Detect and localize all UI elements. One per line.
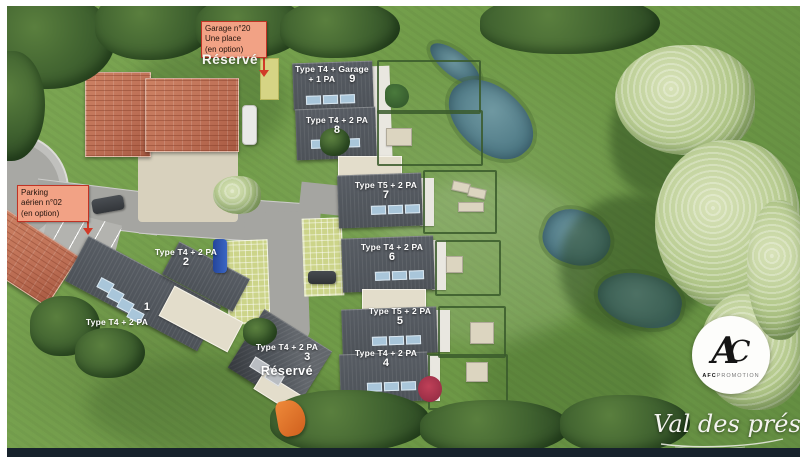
paver-parking-east bbox=[302, 217, 345, 296]
garage-note-line2: Une place bbox=[205, 34, 263, 44]
small-tree bbox=[213, 176, 261, 214]
top-margin bbox=[0, 0, 800, 6]
tree-cluster bbox=[280, 0, 400, 58]
unit-6-number: 6 bbox=[357, 252, 427, 264]
garden-hedge-6 bbox=[435, 240, 501, 296]
project-name: Val des prés bbox=[647, 410, 800, 438]
existing-house-wing-west bbox=[85, 72, 151, 157]
green-tent bbox=[385, 84, 409, 108]
unit-3-number: 3 bbox=[291, 352, 324, 364]
monogram-c: C bbox=[728, 334, 750, 368]
reserved-label-unit-3: Réservé bbox=[250, 364, 324, 379]
car-dark-parked bbox=[308, 271, 336, 284]
company-name-bold: AFC bbox=[702, 373, 716, 379]
dining-set bbox=[470, 322, 494, 344]
left-margin bbox=[0, 0, 7, 457]
unit-7-number: 7 bbox=[349, 190, 423, 202]
unit-8-label: Type T4 + 2 PA 8 bbox=[300, 115, 374, 137]
unit-2-label: Type T4 + 2 PA 2 bbox=[148, 247, 224, 269]
garage-arrow-head bbox=[259, 70, 269, 77]
red-flower-bush bbox=[418, 376, 442, 402]
company-name: AFCPROMOTION bbox=[702, 373, 759, 379]
unit-9-label: Type T4 + Garage + 1 PA 9 bbox=[290, 64, 374, 86]
solar-panels-6 bbox=[375, 270, 424, 281]
dining-set bbox=[466, 362, 488, 382]
parking-note-line1: Parking bbox=[21, 188, 85, 198]
existing-house-wing-east bbox=[145, 78, 239, 152]
garden-table bbox=[446, 256, 463, 273]
solar-panels-9 bbox=[306, 94, 355, 105]
unit-9-type2: + 1 PA bbox=[308, 74, 335, 84]
car-white bbox=[242, 105, 257, 145]
unit-5-number: 5 bbox=[364, 316, 436, 328]
unit-4-number: 4 bbox=[350, 358, 422, 370]
parking-note-line3: (en option) bbox=[21, 209, 85, 219]
parking-arrow-head bbox=[83, 228, 93, 235]
reserved-label-top: Réservé bbox=[202, 52, 258, 67]
unit-9-number: 9 bbox=[349, 74, 355, 86]
aerial-render: Garage n°20 Une place (en option) Parkin… bbox=[7, 6, 800, 457]
unit-3-label: Type T4 + 2 PA 3 Réservé bbox=[250, 342, 324, 379]
unit-9-type: Type T4 + Garage bbox=[290, 64, 374, 74]
bottom-border-bar bbox=[7, 448, 800, 457]
solar-panels-5 bbox=[372, 335, 421, 346]
tree-cluster bbox=[480, 0, 660, 54]
garden-bench bbox=[458, 202, 484, 212]
flowering-tree bbox=[615, 45, 755, 155]
afc-promotion-logo: AC AFCPROMOTION bbox=[692, 316, 770, 394]
unit-1-number-label: 1 bbox=[140, 302, 154, 314]
unit-8-number: 8 bbox=[300, 125, 374, 137]
garden-table bbox=[386, 128, 412, 146]
afc-monogram: AC bbox=[711, 331, 750, 371]
bush-row bbox=[420, 400, 570, 455]
parking-note-line2: aérien n°02 bbox=[21, 198, 85, 208]
unit-2-number: 2 bbox=[148, 257, 224, 269]
solar-panels-7 bbox=[371, 204, 420, 215]
garage-note-line1: Garage n°20 bbox=[205, 24, 263, 34]
company-name-light: PROMOTION bbox=[717, 373, 760, 379]
unit-4-label: Type T4 + 2 PA 4 bbox=[350, 348, 422, 370]
site-plan-image: Garage n°20 Une place (en option) Parkin… bbox=[0, 0, 800, 457]
unit-7-label: Type T5 + 2 PA 7 bbox=[349, 180, 423, 202]
unit-1-number: 1 bbox=[140, 302, 154, 314]
unit-1-type: Type T4 + 2 PA bbox=[82, 317, 152, 327]
parking-note: Parking aérien n°02 (en option) bbox=[17, 185, 89, 222]
unit-5-label: Type T5 + 2 PA 5 bbox=[364, 306, 436, 328]
unit-6-label: Type T4 + 2 PA 6 bbox=[357, 242, 427, 264]
unit-1-label: Type T4 + 2 PA bbox=[82, 317, 152, 327]
unit-3-type: Type T4 + 2 PA bbox=[250, 342, 324, 352]
